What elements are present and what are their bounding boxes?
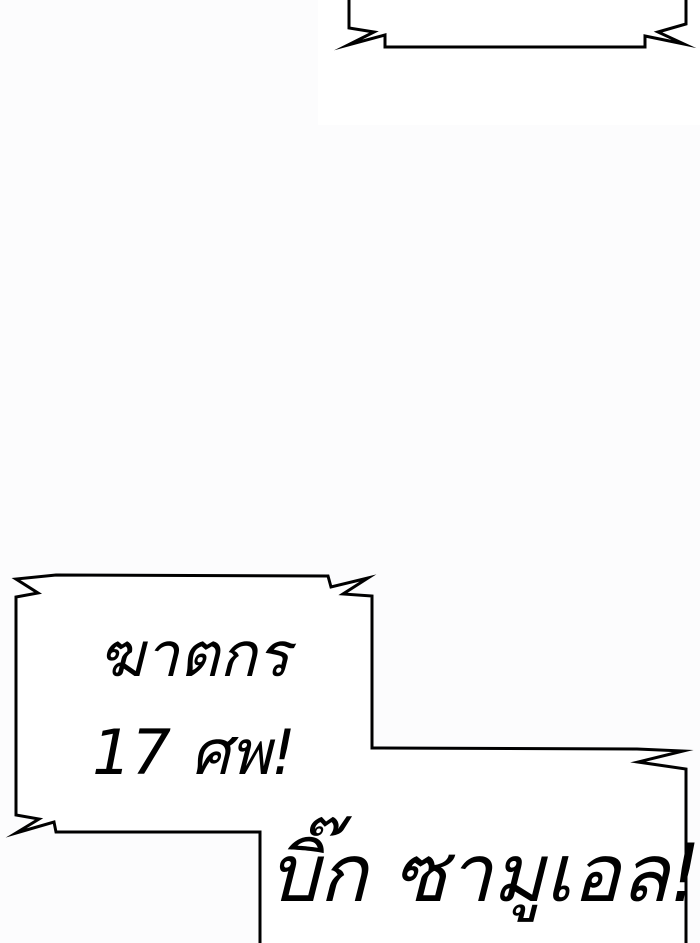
top-speech-bubble [348, 0, 686, 47]
speech-bubble-layer [0, 0, 700, 943]
bubble-text-corpse-count: 17 ศพ! [16, 722, 372, 784]
bubble-text-murderer: ฆาตกร [16, 624, 372, 686]
bubble-text-big-samuel: บิ๊ก ซามูเอล! [268, 834, 680, 914]
comic-page: ฆาตกร 17 ศพ! บิ๊ก ซามูเอล! [0, 0, 700, 943]
